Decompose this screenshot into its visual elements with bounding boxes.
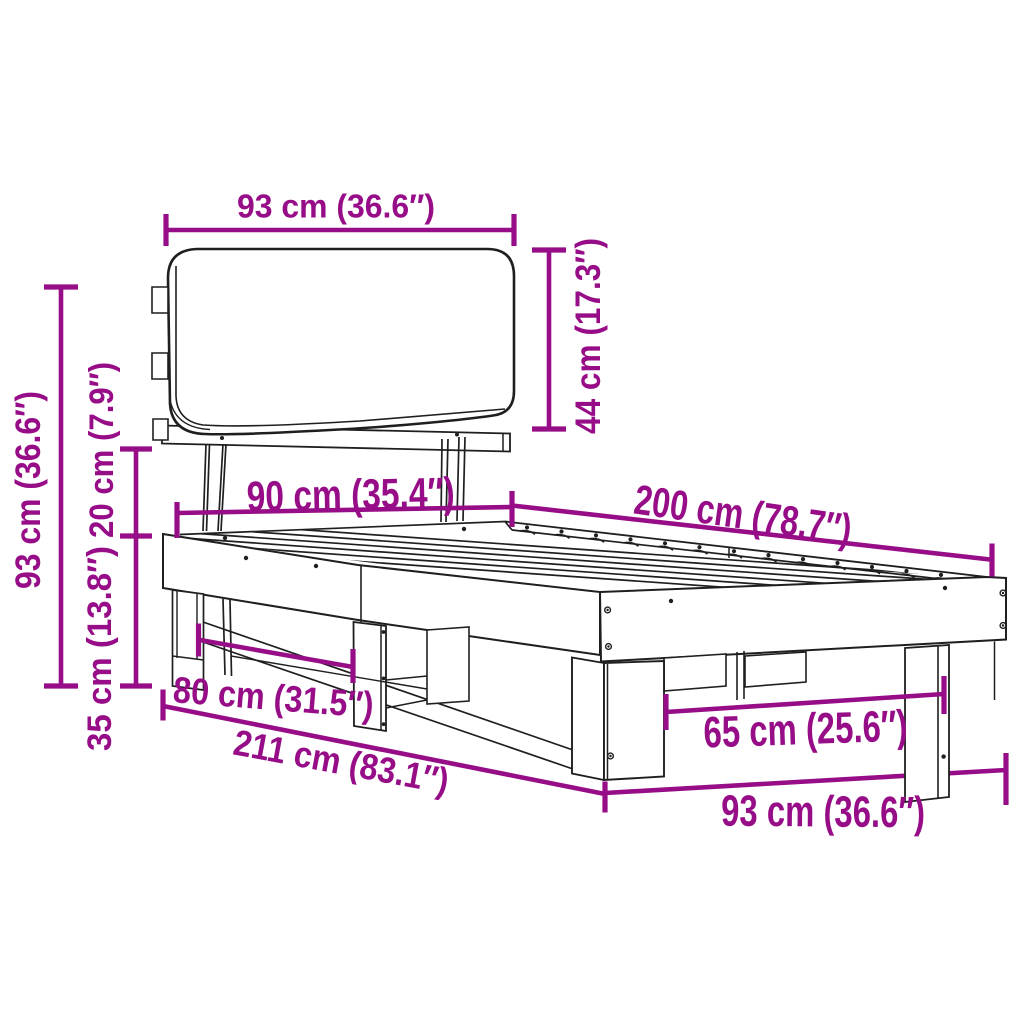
svg-text:211 cm (83.1″): 211 cm (83.1″) [230,722,452,802]
svg-text:93 cm (36.6″): 93 cm (36.6″) [721,787,925,838]
svg-text:20 cm (7.9″): 20 cm (7.9″) [83,362,121,538]
svg-text:90 cm (35.4″): 90 cm (35.4″) [246,470,455,521]
svg-text:200 cm (78.7″): 200 cm (78.7″) [631,476,854,553]
svg-text:93 cm (36.6″): 93 cm (36.6″) [237,189,435,226]
svg-text:65 cm (25.6″): 65 cm (25.6″) [703,701,909,757]
svg-text:35 cm (13.8″): 35 cm (13.8″) [81,546,119,751]
svg-text:80 cm (31.5″): 80 cm (31.5″) [172,669,376,726]
svg-text:93 cm (36.6″): 93 cm (36.6″) [8,391,48,589]
svg-text:44 cm (17.3″): 44 cm (17.3″) [568,238,608,434]
